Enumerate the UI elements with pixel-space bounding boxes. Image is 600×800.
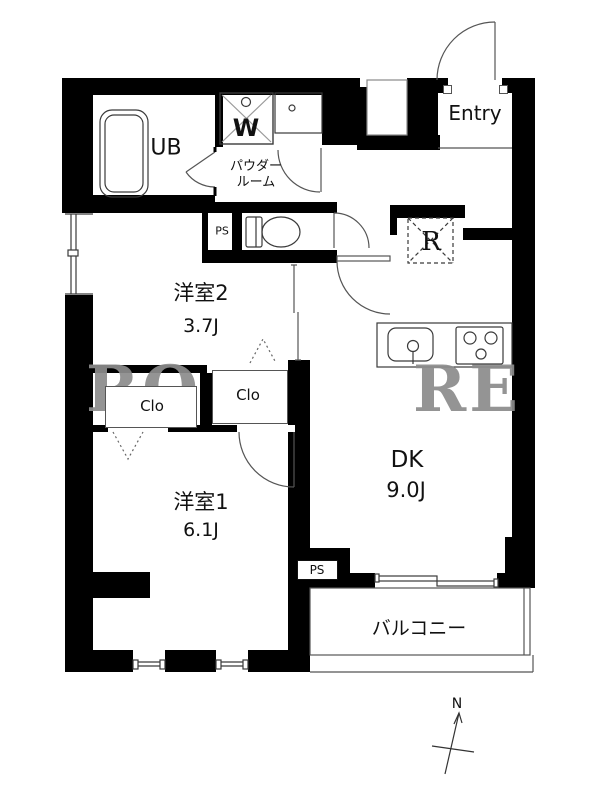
entry-nook-outline <box>367 80 407 135</box>
wall-bottom <box>65 650 310 672</box>
label-room2-name: 洋室2 <box>173 277 228 307</box>
wall-fridge-nook-top <box>390 205 465 218</box>
label-powder-room: パウダー ルーム <box>230 159 282 192</box>
wall-ub-right <box>215 95 223 147</box>
label-room2-size: 3.7J <box>183 315 219 337</box>
wall-toilet-bottom <box>202 250 337 263</box>
room1-door <box>239 432 294 487</box>
label-room1-size: 6.1J <box>183 519 219 541</box>
label-closet2: Clo <box>236 386 260 404</box>
entry-door <box>437 22 495 80</box>
label-ub: UB <box>150 136 181 161</box>
floor-plan: W <box>0 0 600 800</box>
wall-room1-stub <box>93 572 150 598</box>
dk-door <box>337 256 390 314</box>
label-closet1: Clo <box>140 397 164 415</box>
north-label: N <box>452 696 462 712</box>
label-balcony: バルコニー <box>372 614 467 641</box>
door-room1-opening <box>237 425 295 432</box>
vanity-sink-icon <box>275 93 322 133</box>
window-room1-opening-1 <box>133 650 165 672</box>
wall-right <box>512 78 535 588</box>
entry-door-jamb-right <box>499 85 508 94</box>
powder-room-door <box>278 148 321 192</box>
ub-door <box>186 147 215 196</box>
wall-fridge-nook-left <box>390 205 397 235</box>
window-room2-left-opening <box>62 213 93 295</box>
fridge-pad-icon <box>408 218 453 263</box>
room2-sliding-door <box>291 265 301 360</box>
wall-dk-right-step <box>505 537 535 573</box>
wall-balcony-left <box>288 588 310 655</box>
entry-door-jamb-left <box>443 85 452 94</box>
label-ps-dk: PS <box>310 563 325 577</box>
label-dk-size: 9.0J <box>386 478 426 502</box>
fridge-symbol-label: R <box>421 227 442 257</box>
washer-symbol-label: W <box>233 114 259 142</box>
wall-ub-bottom <box>62 195 215 213</box>
wall-top <box>62 78 360 95</box>
wall-nook-bottom <box>357 135 440 150</box>
wall-toilet-right-top <box>330 202 337 213</box>
label-entry: Entry <box>448 101 501 125</box>
label-room1-name: 洋室1 <box>173 486 228 516</box>
wall-left-lower <box>65 295 93 655</box>
wall-kitchen-step <box>463 228 512 240</box>
wall-dk-bottom-right <box>497 573 535 588</box>
wall-ps-left <box>202 213 208 253</box>
north-compass-icon <box>432 713 474 774</box>
toilet-door <box>334 213 369 248</box>
wall-slider-post <box>288 360 310 373</box>
label-powder-line2: ルーム <box>230 175 282 191</box>
door-toilet-opening <box>330 213 337 248</box>
label-ps-toilet: PS <box>215 225 229 238</box>
clo2-fold-door-icon <box>250 339 276 363</box>
wall-ps-divider <box>232 213 242 253</box>
watermark-right: RE <box>413 358 521 422</box>
wall-left-upper <box>62 78 93 213</box>
window-balcony-opening <box>375 573 497 588</box>
toilet-icon <box>246 217 300 247</box>
label-dk-name: DK <box>391 447 424 473</box>
bathtub-icon <box>100 110 148 197</box>
label-powder-line1: パウダー <box>230 159 282 175</box>
wall-toilet-top <box>195 202 337 213</box>
window-room1-opening-2 <box>216 650 248 672</box>
clo1-fold-door-icon <box>113 432 143 459</box>
washer-pad-icon <box>220 93 273 144</box>
wall-clo-divider <box>200 373 212 425</box>
wall-nook-left <box>351 87 367 135</box>
